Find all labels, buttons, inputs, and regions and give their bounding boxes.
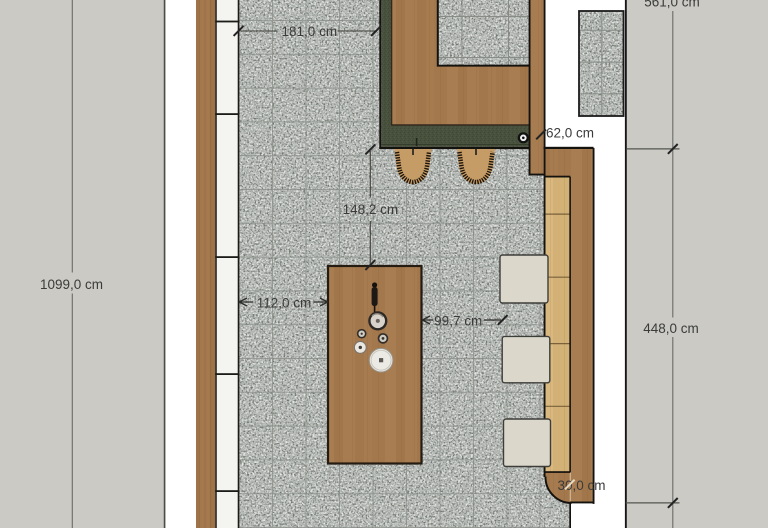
svg-text:30,0 cm: 30,0 cm <box>557 478 605 493</box>
svg-text:62,0 cm: 62,0 cm <box>546 126 594 141</box>
svg-text:99,7 cm: 99,7 cm <box>434 313 482 328</box>
svg-text:561,0 cm: 561,0 cm <box>644 0 700 10</box>
svg-text:181,0 cm: 181,0 cm <box>282 24 338 39</box>
svg-text:148,2 cm: 148,2 cm <box>343 202 399 217</box>
svg-text:448,0 cm: 448,0 cm <box>643 321 699 336</box>
svg-text:112,0 cm: 112,0 cm <box>257 295 312 310</box>
svg-text:1099,0 cm: 1099,0 cm <box>40 277 103 292</box>
